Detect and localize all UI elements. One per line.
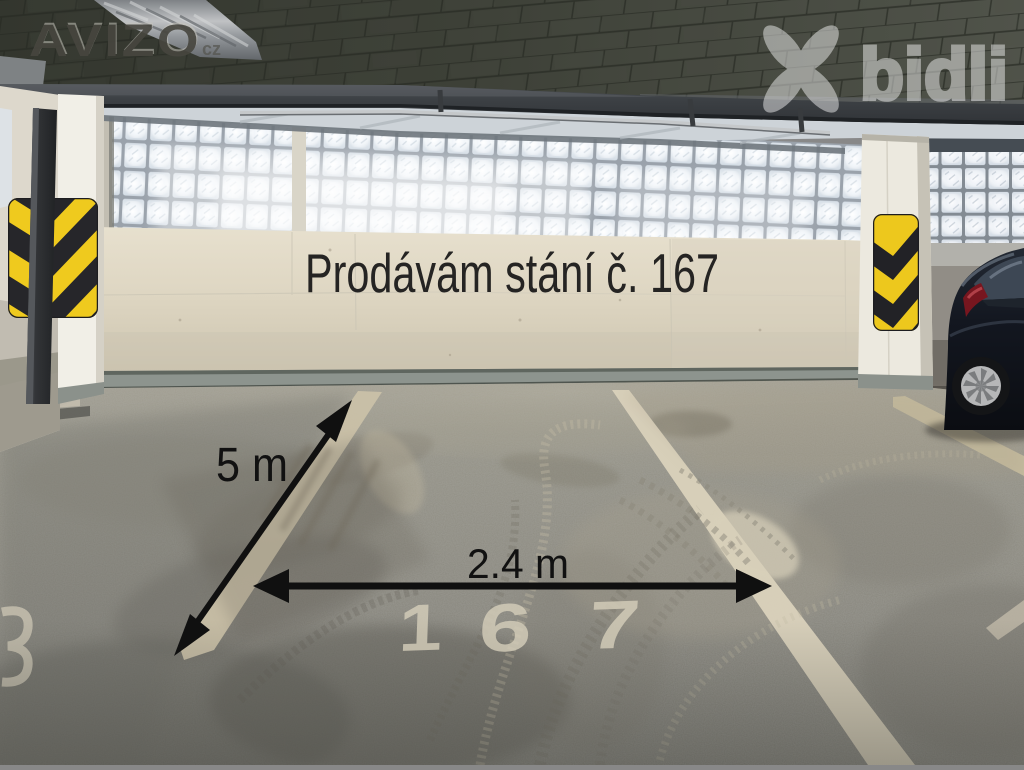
svg-text:5 m: 5 m xyxy=(216,439,288,492)
svg-text:1: 1 xyxy=(397,591,443,666)
svg-text:6: 6 xyxy=(477,589,533,667)
svg-text:Prodávám stání č. 167: Prodávám stání č. 167 xyxy=(305,242,719,304)
svg-text:bidli: bidli xyxy=(860,35,1008,115)
svg-text:cz: cz xyxy=(202,39,221,59)
svg-text:7: 7 xyxy=(586,586,643,664)
svg-text:2.4 m: 2.4 m xyxy=(467,540,569,587)
svg-text:AVIZO: AVIZO xyxy=(29,15,201,66)
